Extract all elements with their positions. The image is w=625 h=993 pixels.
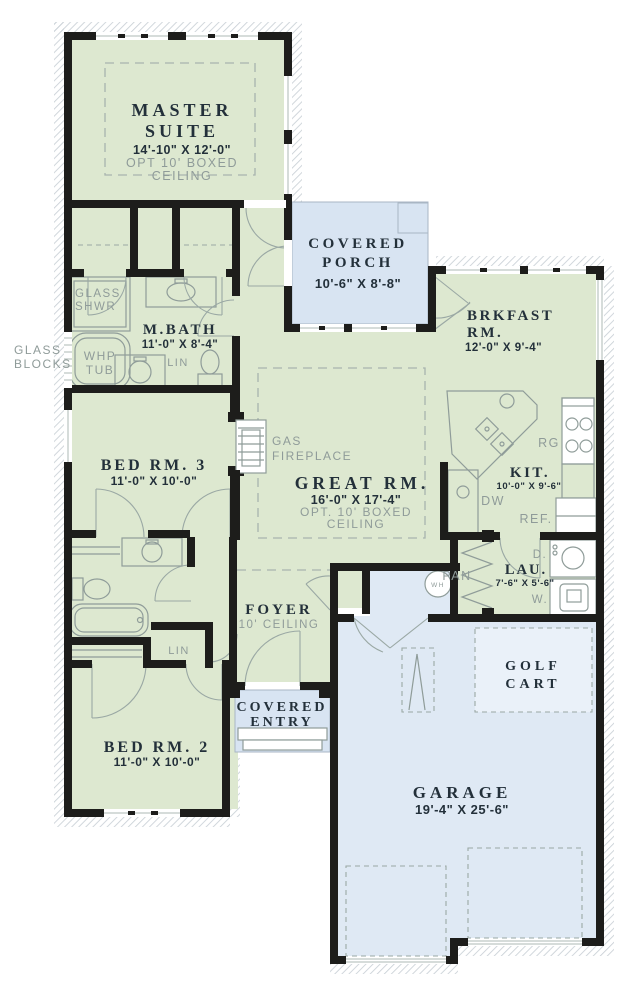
kitchen-dims: 10'-0" X 9'-6" — [497, 481, 562, 492]
golf-cart-label: GOLF — [505, 659, 561, 674]
bed3-window — [64, 410, 72, 462]
glass-shower-label: GLASS — [75, 288, 121, 300]
whp-tub-label: WHP — [84, 349, 117, 363]
range-label: RG — [538, 436, 560, 450]
bed3-dims: 11'-0" X 10'-0" — [111, 474, 198, 488]
golf-cart-label2: CART — [505, 677, 560, 692]
washer-label: W. — [532, 594, 548, 606]
dryer — [550, 540, 596, 577]
laundry-dims: 7'-6" X 5'-6" — [495, 578, 554, 589]
porch-corner-pad — [398, 203, 428, 233]
garage-label: GARAGE — [413, 783, 512, 802]
bed2-window — [104, 809, 180, 817]
lin-bath-label: LIN — [167, 357, 189, 369]
breakfast-right-window — [596, 280, 604, 360]
bed2-label: BED RM. 2 — [104, 739, 211, 756]
refrigerator — [556, 498, 596, 534]
washer — [550, 579, 596, 616]
pantry-label: PAN — [442, 569, 471, 583]
kitchen-label: KIT. — [510, 465, 550, 481]
laundry-label: LAU. — [505, 562, 547, 578]
master-suite-note2: CEILING — [152, 169, 213, 183]
whp-tub-label2: TUB — [86, 363, 115, 377]
bed3-label: BED RM. 3 — [101, 457, 208, 474]
floor-plan: MASTER SUITE 14'-10" X 12'-0" OPT 10' BO… — [0, 0, 625, 993]
glass-shower-label2: SHWR — [75, 301, 116, 313]
great-room-label: GREAT RM. — [295, 473, 430, 493]
foyer-label: FOYER — [245, 602, 313, 618]
breakfast-top-windows — [446, 266, 586, 274]
foyer-note: 10' CEILING — [239, 619, 320, 631]
entry-steps — [238, 728, 327, 750]
dishwasher-label: DW — [481, 494, 505, 508]
mbath-dims: 11'-0" X 8'-4" — [142, 339, 218, 351]
master-suite-note1: OPT 10' BOXED — [126, 156, 238, 170]
glass-blocks-label: GLASS — [14, 343, 62, 357]
gas-fireplace-label2: FIREPLACE — [272, 449, 352, 463]
porch-door-opening — [284, 240, 292, 286]
glass-blocks-label2: BLOCKS — [14, 357, 72, 371]
porch-wall-windows — [300, 324, 416, 332]
bed2-dims: 11'-0" X 10'-0" — [114, 755, 201, 769]
floor-plan-drawing: MASTER SUITE 14'-10" X 12'-0" OPT 10' BO… — [0, 0, 625, 993]
refrigerator-label: REF. — [519, 512, 552, 526]
mbath-label: M.BATH — [143, 322, 217, 338]
left-wing-floor — [72, 332, 238, 809]
brkfast-dims: 12'-0" X 9'-4" — [465, 342, 542, 354]
dryer-label: D. — [533, 549, 548, 561]
brkfast-label: BRKFAST — [467, 308, 554, 324]
covered-porch-dims: 10'-6" X 8'-8" — [315, 276, 401, 291]
master-suite-dims: 14'-10" X 12'-0" — [133, 143, 231, 157]
covered-entry-label: COVERED — [236, 700, 327, 715]
range — [562, 398, 594, 464]
garage-dims: 19'-4" X 25'-6" — [415, 802, 509, 817]
master-door-opening — [244, 200, 286, 208]
lin-hall-label: LIN — [168, 645, 190, 657]
covered-porch-label: COVERED — [308, 236, 408, 252]
master-suite-label: MASTER — [131, 100, 232, 120]
water-heater-label: WH — [431, 582, 445, 589]
great-room-note2: CEILING — [327, 517, 386, 531]
garage-floor-lower — [338, 938, 450, 956]
master-suite-label2: SUITE — [145, 121, 219, 141]
gas-fireplace-label: GAS — [272, 434, 302, 448]
brkfast-label2: RM. — [467, 325, 503, 341]
covered-entry-label2: ENTRY — [250, 715, 314, 730]
covered-porch-label2: PORCH — [322, 255, 394, 271]
